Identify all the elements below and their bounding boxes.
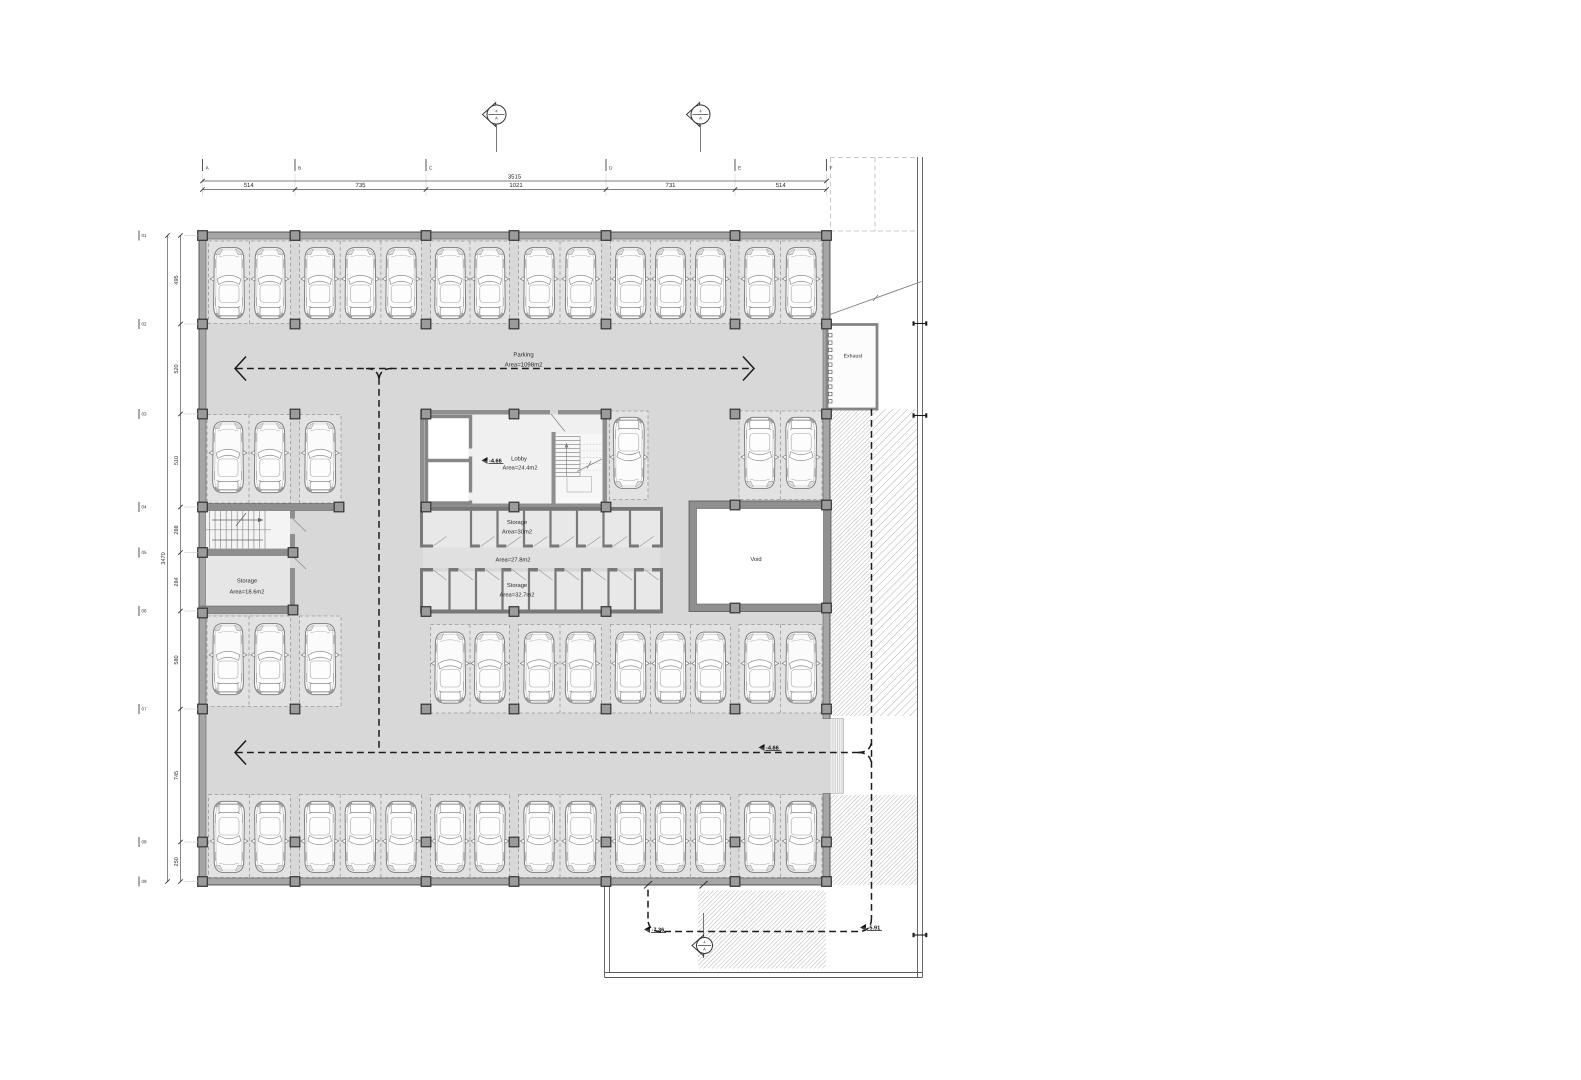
svg-text:09: 09	[142, 879, 148, 884]
svg-text:02: 02	[142, 322, 148, 327]
svg-text:A: A	[699, 116, 702, 121]
svg-text:288: 288	[174, 525, 180, 534]
svg-text:745: 745	[174, 771, 180, 780]
svg-text:Storage: Storage	[507, 519, 527, 526]
svg-text:A: A	[495, 116, 498, 121]
svg-text:03: 03	[142, 412, 148, 417]
svg-text:05: 05	[142, 550, 148, 555]
svg-text:04: 04	[142, 505, 148, 510]
svg-text:735: 735	[355, 182, 366, 189]
svg-text:Parking: Parking	[513, 352, 533, 359]
svg-text:731: 731	[665, 182, 676, 189]
svg-text:514: 514	[244, 182, 255, 189]
svg-text:3515: 3515	[508, 174, 522, 181]
svg-text:Lobby: Lobby	[511, 456, 527, 463]
svg-text:580: 580	[174, 655, 180, 664]
svg-text:08: 08	[142, 840, 148, 845]
svg-text:Area=32.7m2: Area=32.7m2	[500, 592, 535, 599]
svg-text:495: 495	[174, 275, 180, 284]
svg-text:Area=30m2: Area=30m2	[502, 529, 532, 536]
svg-text:A: A	[703, 947, 706, 952]
svg-text:06: 06	[142, 609, 148, 614]
svg-text:07: 07	[142, 707, 148, 712]
svg-text:1021: 1021	[509, 182, 523, 189]
svg-text:Storage: Storage	[507, 582, 527, 589]
svg-text:Exhaust: Exhaust	[844, 354, 863, 360]
svg-text:250: 250	[174, 857, 180, 866]
svg-text:D: D	[609, 166, 613, 172]
svg-text:3470: 3470	[161, 552, 167, 564]
svg-text:Storage: Storage	[237, 578, 257, 585]
svg-text:E: E	[738, 166, 741, 172]
svg-text:F: F	[830, 166, 833, 172]
svg-text:01: 01	[142, 233, 148, 238]
svg-text:510: 510	[174, 456, 180, 465]
svg-text:Area=24.4m2: Area=24.4m2	[503, 465, 538, 472]
svg-text:Area=1098m2: Area=1098m2	[505, 362, 544, 369]
svg-text:284: 284	[174, 577, 180, 586]
svg-text:B: B	[298, 166, 301, 172]
svg-text:Void: Void	[750, 556, 761, 563]
svg-text:Area=27.8m2: Area=27.8m2	[496, 557, 531, 564]
svg-text:520: 520	[174, 364, 180, 373]
svg-text:Area=18.6m2: Area=18.6m2	[230, 589, 265, 596]
svg-text:514: 514	[776, 182, 787, 189]
svg-text:C: C	[429, 166, 433, 172]
